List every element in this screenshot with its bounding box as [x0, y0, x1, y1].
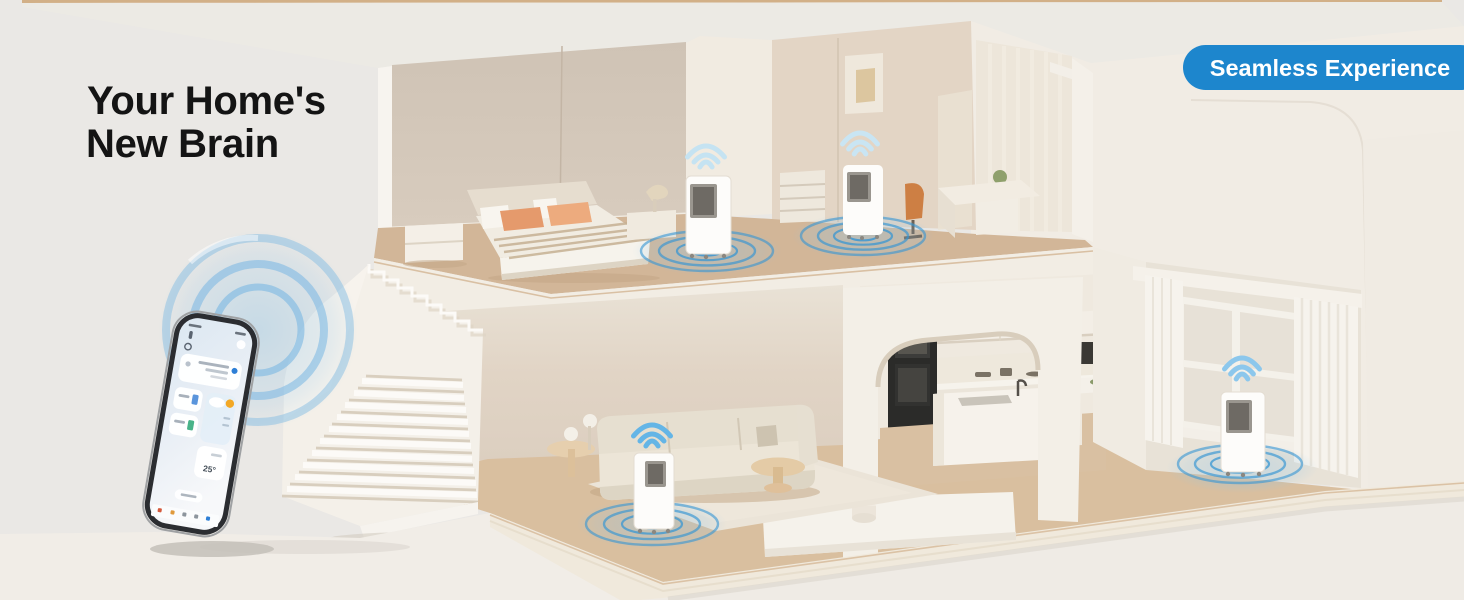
- svg-text:New Brain: New Brain: [86, 122, 279, 166]
- svg-text:Seamless Experience: Seamless Experience: [1210, 55, 1450, 81]
- svg-text:Your Home's: Your Home's: [87, 79, 326, 123]
